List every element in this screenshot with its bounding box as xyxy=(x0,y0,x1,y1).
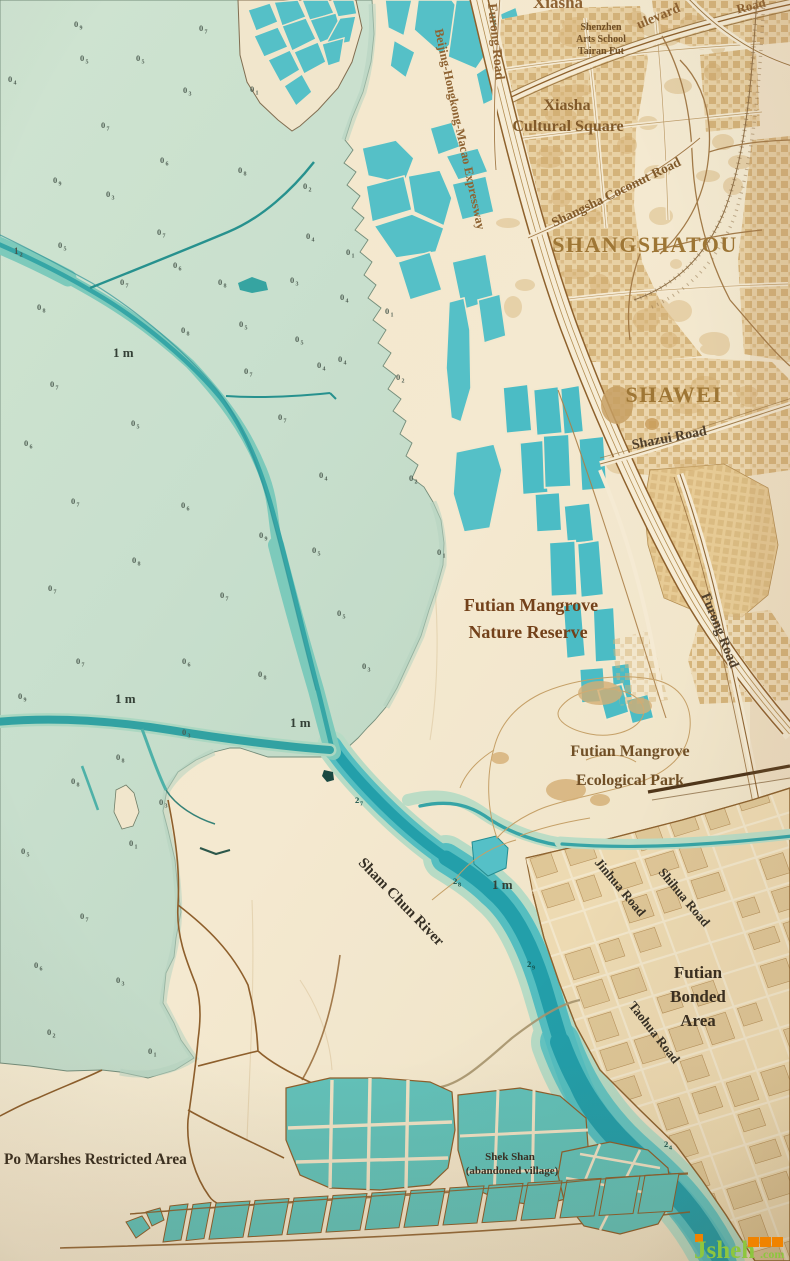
svg-text:Jsheh: Jsheh xyxy=(694,1237,755,1261)
svg-text:.com: .com xyxy=(760,1247,784,1261)
